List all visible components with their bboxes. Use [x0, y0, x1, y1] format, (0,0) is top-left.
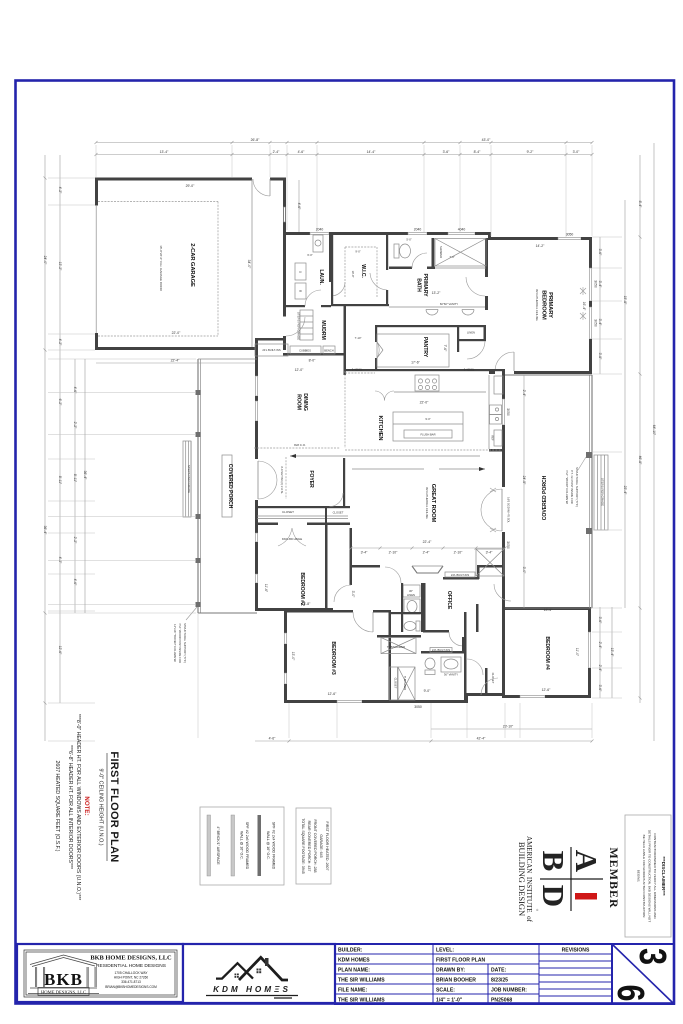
svg-text:13'-2": 13'-2"	[58, 262, 62, 271]
svg-text:W/ CATHEDRAL CEILING: W/ CATHEDRAL CEILING	[425, 487, 429, 519]
svg-text:8/23/25: 8/23/25	[491, 978, 508, 984]
svg-text:TUB/SHWR: TUB/SHWR	[403, 676, 407, 690]
svg-text:BENCH: BENCH	[324, 349, 333, 353]
svg-text:4"x4" "WOOD" COLUMN W/: 4"x4" "WOOD" COLUMN W/	[565, 470, 569, 504]
svg-text:3050: 3050	[414, 705, 422, 709]
svg-text:CLOSET: CLOSET	[282, 510, 294, 514]
svg-text:24'-0": 24'-0"	[43, 256, 47, 265]
svg-text:A: A	[569, 850, 604, 873]
svg-text:RESIDENTIAL HOME DESIGNS: RESIDENTIAL HOME DESIGNS	[96, 963, 166, 969]
svg-text:NOTE:: NOTE:	[83, 796, 90, 815]
svg-text:REAR COVERED PORCH: 437: REAR COVERED PORCH: 437	[307, 821, 311, 872]
svg-text:4'-6": 4'-6"	[269, 737, 277, 741]
svg-text:8x8 C.O.: 8x8 C.O.	[294, 443, 306, 447]
svg-text:336.471.8713: 336.471.8713	[121, 980, 141, 984]
svg-text:DRAWN BY:: DRAWN BY:	[436, 968, 465, 974]
svg-text:SPF #2 2x4 WOOD FRAMED: SPF #2 2x4 WOOD FRAMED	[272, 822, 276, 870]
svg-text:43'-0": 43'-0"	[482, 138, 491, 142]
svg-text:PRIMARY: PRIMARY	[547, 292, 553, 318]
svg-text:3050: 3050	[594, 319, 598, 327]
svg-text:13'-4": 13'-4"	[160, 150, 169, 154]
svg-text:BEGINS.: BEGINS.	[637, 870, 641, 883]
svg-text:22'-4": 22'-4"	[423, 540, 432, 544]
svg-text:12'-0": 12'-0"	[295, 368, 304, 372]
svg-text:HIGH POINT, NC 27260: HIGH POINT, NC 27260	[114, 976, 149, 980]
svg-text:7'-10": 7'-10"	[355, 336, 362, 340]
svg-text:DATE:: DATE:	[491, 968, 506, 974]
svg-text:***DISCLAIMER***: ***DISCLAIMER***	[661, 856, 666, 896]
svg-text:9'-0": 9'-0"	[355, 250, 360, 254]
svg-text:24'-5": 24'-5"	[522, 476, 526, 485]
svg-text:3'-4": 3'-4"	[361, 551, 369, 555]
svg-text:3050: 3050	[506, 541, 510, 549]
svg-text:12'-6": 12'-6"	[542, 688, 551, 692]
svg-text:3'-0": 3'-0"	[573, 150, 581, 154]
svg-text:3050: 3050	[506, 408, 510, 416]
svg-text:W/ CATHEDRAL CEILING: W/ CATHEDRAL CEILING	[535, 289, 539, 321]
svg-text:8'-4": 8'-4"	[474, 150, 482, 154]
svg-text:PN25068: PN25068	[491, 998, 512, 1004]
svg-text:4"x4" WOOD POST INSIDE FOR: 4"x4" WOOD POST INSIDE FOR	[178, 623, 182, 663]
svg-text:12'-6": 12'-6"	[328, 692, 337, 696]
svg-text:2040: 2040	[414, 228, 422, 232]
svg-text:13'-8": 13'-8"	[302, 602, 311, 606]
svg-text:24'L BUILT-INS: 24'L BUILT-INS	[451, 573, 469, 577]
svg-text:STEPS PER GRADE: STEPS PER GRADE	[297, 312, 301, 340]
svg-text:PANTRY: PANTRY	[422, 337, 428, 358]
svg-text:2'-4": 2'-4"	[423, 551, 431, 555]
svg-text:3'-6": 3'-6"	[598, 249, 602, 257]
svg-text:2'-10": 2'-10"	[389, 551, 398, 555]
svg-text:24'L BUILT-INS: 24'L BUILT-INS	[262, 348, 280, 352]
svg-text:STEPS PER GRADE: STEPS PER GRADE	[187, 465, 191, 493]
svg-text:12"x16" "BOXED" COLUMN W/: 12"x16" "BOXED" COLUMN W/	[173, 624, 177, 662]
svg-text:4040: 4040	[458, 228, 466, 232]
svg-text:18'-0"x8'-0" O.H. GARAGE DOOR: 18'-0"x8'-0" O.H. GARAGE DOOR	[159, 245, 163, 291]
svg-text:60"60" VANITY: 60"60" VANITY	[440, 302, 458, 306]
svg-text:BEDROOM #2: BEDROOM #2	[299, 572, 305, 606]
svg-text:6'-0": 6'-0"	[307, 253, 312, 257]
svg-text:15'-8": 15'-8"	[623, 296, 627, 305]
svg-text:17'-6": 17'-6"	[411, 361, 420, 365]
svg-text:LINEN: LINEN	[467, 331, 475, 335]
svg-text:4'-2": 4'-2"	[58, 187, 62, 195]
svg-text:GARAGE: 645: GARAGE: 645	[319, 834, 323, 857]
svg-text:3050: 3050	[566, 233, 574, 237]
svg-text:W: W	[299, 289, 302, 293]
svg-text:13'-0": 13'-0"	[291, 652, 295, 661]
svg-text:2607 HEATED SQUARE FEET (O.S.F: 2607 HEATED SQUARE FEET (O.S.F.)	[54, 761, 60, 852]
svg-text:3'-4": 3'-4"	[598, 281, 602, 289]
svg-text:64'-10": 64'-10"	[652, 425, 656, 436]
svg-text:STEPS PER GRADE: STEPS PER GRADE	[601, 478, 605, 506]
svg-text:2'-2": 2'-2"	[73, 422, 77, 430]
svg-text:KDM HOMΞS: KDM HOMΞS	[213, 985, 291, 994]
svg-text:BRIAN@BKBHOMEDESIGNS.COM: BRIAN@BKBHOMEDESIGNS.COM	[105, 985, 157, 989]
svg-text:23'-4": 23'-4"	[623, 486, 627, 495]
svg-text:13'-2": 13'-2"	[432, 291, 441, 295]
svg-text:4'-6": 4'-6"	[73, 579, 77, 587]
svg-text:CLOSET: CLOSET	[333, 511, 344, 515]
svg-text:ROOM: ROOM	[296, 394, 302, 410]
svg-text:LEVEL:: LEVEL:	[436, 948, 454, 954]
svg-text:3'-8": 3'-8"	[598, 353, 602, 361]
svg-text:PLAN NAME:: PLAN NAME:	[338, 968, 370, 974]
svg-text:REF: REF	[491, 435, 495, 441]
svg-text:W.I.C.: W.I.C.	[360, 264, 366, 278]
svg-text:22'-4": 22'-4"	[171, 359, 180, 363]
svg-text:10'-0": 10'-0"	[351, 271, 355, 278]
svg-text:5'-0": 5'-0"	[406, 238, 411, 242]
svg-text:14'-2": 14'-2"	[536, 244, 545, 248]
svg-text:3'-6": 3'-6"	[443, 150, 451, 154]
svg-text:3-4(5)CL: 3-4(5)CL	[352, 368, 363, 372]
svg-text:4'-2": 4'-2"	[58, 339, 62, 347]
svg-text:2'-4": 2'-4"	[273, 150, 281, 154]
svg-text:9'-2": 9'-2"	[527, 150, 535, 154]
svg-text:2'-4": 2'-4"	[598, 642, 602, 650]
svg-text:FIRST FLOOR PLAN: FIRST FLOOR PLAN	[436, 958, 486, 964]
svg-text:FIRST FLOOR PLAN: FIRST FLOOR PLAN	[108, 751, 120, 862]
svg-text:MEMBER: MEMBER	[607, 847, 621, 908]
svg-text:LINEN: LINEN	[407, 593, 415, 597]
svg-text:PRIMARY: PRIMARY	[422, 273, 428, 297]
svg-text:FOYER: FOYER	[308, 470, 314, 488]
svg-text:FIRST FLOOR HEATED: 2607: FIRST FLOOR HEATED: 2607	[325, 822, 329, 871]
svg-text:REVISIONS: REVISIONS	[562, 948, 590, 954]
svg-text:23'-10": 23'-10"	[503, 725, 514, 729]
svg-text:2'-4": 2'-4"	[522, 390, 526, 398]
svg-text:KING BD HINGE: KING BD HINGE	[282, 537, 303, 541]
svg-text:SPF #2 2x6 WOOD FRAMED: SPF #2 2x6 WOOD FRAMED	[245, 822, 249, 870]
svg-text:BKB: BKB	[44, 970, 83, 989]
svg-text:36'-4": 36'-4"	[83, 471, 87, 480]
svg-text:6: 6	[609, 985, 651, 1002]
svg-text:WALL @ 16" O.C.: WALL @ 16" O.C.	[266, 831, 270, 860]
svg-text:3-4(5)CL: 3-4(5)CL	[464, 368, 475, 372]
svg-text:8'-11": 8'-11"	[58, 476, 62, 485]
svg-text:TOTAL SQUARE FOOTAGE: 3945: TOTAL SQUARE FOOTAGE: 3945	[301, 818, 305, 874]
svg-text:TUB/SHOWER: TUB/SHOWER	[387, 645, 405, 649]
svg-text:2'-4": 2'-4"	[598, 665, 602, 673]
svg-text:13'-4": 13'-4"	[610, 648, 614, 657]
svg-text:8'-11": 8'-11"	[73, 474, 77, 483]
svg-text:CLOSET: CLOSET	[394, 678, 398, 689]
svg-text:GREAT ROOM: GREAT ROOM	[430, 484, 436, 523]
svg-text:STRUCTURAL SUPPORT (TYP.): STRUCTURAL SUPPORT (TYP.)	[575, 467, 579, 507]
svg-text:3'-4": 3'-4"	[486, 551, 494, 555]
svg-text:1705 CHALLOCK WAY: 1705 CHALLOCK WAY	[115, 971, 149, 975]
svg-text:2'-2": 2'-2"	[73, 537, 77, 545]
svg-text:34'-0": 34'-0"	[247, 260, 251, 269]
svg-text:***8'-0" HEADER HT. FOR ALL WI: ***8'-0" HEADER HT. FOR ALL WINDOWS AND …	[75, 714, 81, 900]
svg-text:CUBBIES: CUBBIES	[299, 349, 311, 353]
svg-text:4'-6": 4'-6"	[298, 150, 306, 154]
svg-text:SHOWER: SHOWER	[439, 246, 443, 258]
svg-text:29'-0": 29'-0"	[186, 184, 195, 188]
svg-text:BRIAN BOOHER: BRIAN BOOHER	[436, 978, 476, 984]
svg-text:42'-4": 42'-4"	[477, 737, 486, 741]
svg-text:SCALE:: SCALE:	[436, 988, 455, 994]
svg-text:JOB NUMBER:: JOB NUMBER:	[491, 988, 527, 994]
svg-text:COVERED PORCH: COVERED PORCH	[227, 464, 233, 509]
svg-text:8'-4": 8'-4"	[638, 201, 642, 209]
svg-text:BE HELD LIABLE FOR ERRORS AFTE: BE HELD LIABLE FOR ERRORS AFTER CONSTRUC…	[642, 835, 646, 918]
svg-text:2040: 2040	[316, 228, 324, 232]
svg-text:MUDRM: MUDRM	[320, 320, 326, 339]
svg-text:D: D	[300, 270, 302, 274]
svg-text:26'-8": 26'-8"	[251, 138, 260, 142]
svg-text:11'-6": 11'-6"	[264, 584, 268, 593]
svg-text:3050: 3050	[594, 280, 598, 288]
svg-text:24'L BUILT-INS: 24'L BUILT-INS	[432, 648, 450, 652]
svg-text:BEDROOM: BEDROOM	[541, 290, 547, 320]
svg-text:WALL @ 16" O.C.: WALL @ 16" O.C.	[240, 831, 244, 860]
svg-text:2-CAR GARAGE: 2-CAR GARAGE	[189, 243, 195, 287]
svg-text:4" BRICK/1" AIRSPACE: 4" BRICK/1" AIRSPACE	[216, 826, 220, 865]
svg-text:BEDROOM #4: BEDROOM #4	[544, 636, 550, 670]
svg-text:3'-0 SGT W/ (2) 1'-6 SL: 3'-0 SGT W/ (2) 1'-6 SL	[280, 466, 284, 494]
svg-text:36" VANITY: 36" VANITY	[444, 673, 458, 677]
svg-text:9'-0": 9'-0"	[424, 689, 432, 693]
svg-text:BUILDER:: BUILDER:	[338, 948, 363, 954]
svg-text:16'0 SGD W/ 4'0 SDL: 16'0 SGD W/ 4'0 SDL	[507, 497, 511, 523]
svg-text:7'-6": 7'-6"	[443, 345, 447, 353]
svg-text:STRUCTURAL SUPPORT (TYP.): STRUCTURAL SUPPORT (TYP.)	[183, 623, 187, 663]
svg-text:4'-6": 4'-6"	[297, 203, 301, 211]
svg-text:***6'-8" HEADER HT. FOR ALL IN: ***6'-8" HEADER HT. FOR ALL INTERIOR DOO…	[67, 745, 73, 869]
svg-text:14'-4": 14'-4"	[367, 150, 376, 154]
svg-text:3'-0": 3'-0"	[351, 591, 355, 599]
svg-text:4'-6": 4'-6"	[73, 387, 77, 395]
svg-text:B: B	[536, 851, 571, 872]
svg-text:3'-4": 3'-4"	[598, 319, 602, 327]
svg-text:1/4" = 1'-0": 1/4" = 1'-0"	[436, 998, 463, 1004]
svg-text:13'-4": 13'-4"	[544, 608, 553, 612]
svg-text:3'-6": 3'-6"	[598, 685, 602, 693]
svg-text:DINING: DINING	[302, 393, 308, 411]
svg-text:FILE NAME:: FILE NAME:	[338, 988, 367, 994]
svg-text:12'-6": 12'-6"	[58, 646, 62, 655]
svg-text:BEDROOM #3: BEDROOM #3	[330, 641, 336, 675]
svg-text:LAUN.: LAUN.	[318, 269, 324, 285]
svg-text:2'-10": 2'-10"	[454, 551, 463, 555]
svg-text:THE SIR WILLIAMS: THE SIR WILLIAMS	[338, 978, 385, 984]
svg-text:BUILDING DESIGN: BUILDING DESIGN	[517, 842, 527, 916]
svg-text:7'-0": 7'-0"	[449, 255, 454, 259]
svg-text:D: D	[536, 885, 571, 907]
svg-text:6'-2": 6'-2"	[58, 399, 62, 407]
svg-text:11'-0": 11'-0"	[575, 648, 579, 657]
svg-text:3'-0": 3'-0"	[522, 567, 526, 575]
svg-text:FRONT COVERED PORCH: 288: FRONT COVERED PORCH: 288	[313, 819, 317, 872]
svg-text:46'-8": 46'-8"	[638, 456, 642, 465]
svg-text:DETAILS PRIOR TO CONSTRUCTION.: DETAILS PRIOR TO CONSTRUCTION. BKB DESIG…	[648, 830, 652, 922]
svg-text:36'-4": 36'-4"	[43, 526, 47, 535]
svg-text:BKB HOME DESIGNS, LLC: BKB HOME DESIGNS, LLC	[90, 955, 172, 962]
svg-text:9'-0" CEILING HEIGHT (U.N.O.): 9'-0" CEILING HEIGHT (U.N.O.)	[98, 768, 104, 845]
svg-text:FLUSH BAR: FLUSH BAR	[420, 433, 435, 437]
svg-text:16'-4": 16'-4"	[582, 302, 586, 311]
svg-text:CONTRACTOR/OWNER TO VERIFY ALL: CONTRACTOR/OWNER TO VERIFY ALL DIMENSION…	[653, 833, 657, 919]
svg-text:P.T. 4x4 POST INSIDE FOR: P.T. 4x4 POST INSIDE FOR	[570, 470, 574, 504]
svg-text:22'-0": 22'-0"	[420, 401, 429, 405]
svg-text:8'-0": 8'-0"	[309, 359, 317, 363]
svg-text:30": 30"	[409, 589, 413, 593]
svg-text:BATH: BATH	[416, 278, 422, 292]
svg-text:3'-6": 3'-6"	[598, 617, 602, 625]
svg-text:COVERED PORCH: COVERED PORCH	[542, 475, 548, 520]
svg-text:OFFICE: OFFICE	[446, 591, 452, 610]
svg-text:9'-0": 9'-0"	[425, 417, 430, 421]
svg-text:THE SIR WILLIAMS: THE SIR WILLIAMS	[338, 998, 385, 1004]
svg-text:KDM HOMES: KDM HOMES	[338, 958, 370, 964]
svg-text:3: 3	[631, 948, 673, 965]
svg-text:22'-0": 22'-0"	[172, 331, 181, 335]
svg-text:KITCHEN: KITCHEN	[377, 415, 383, 440]
